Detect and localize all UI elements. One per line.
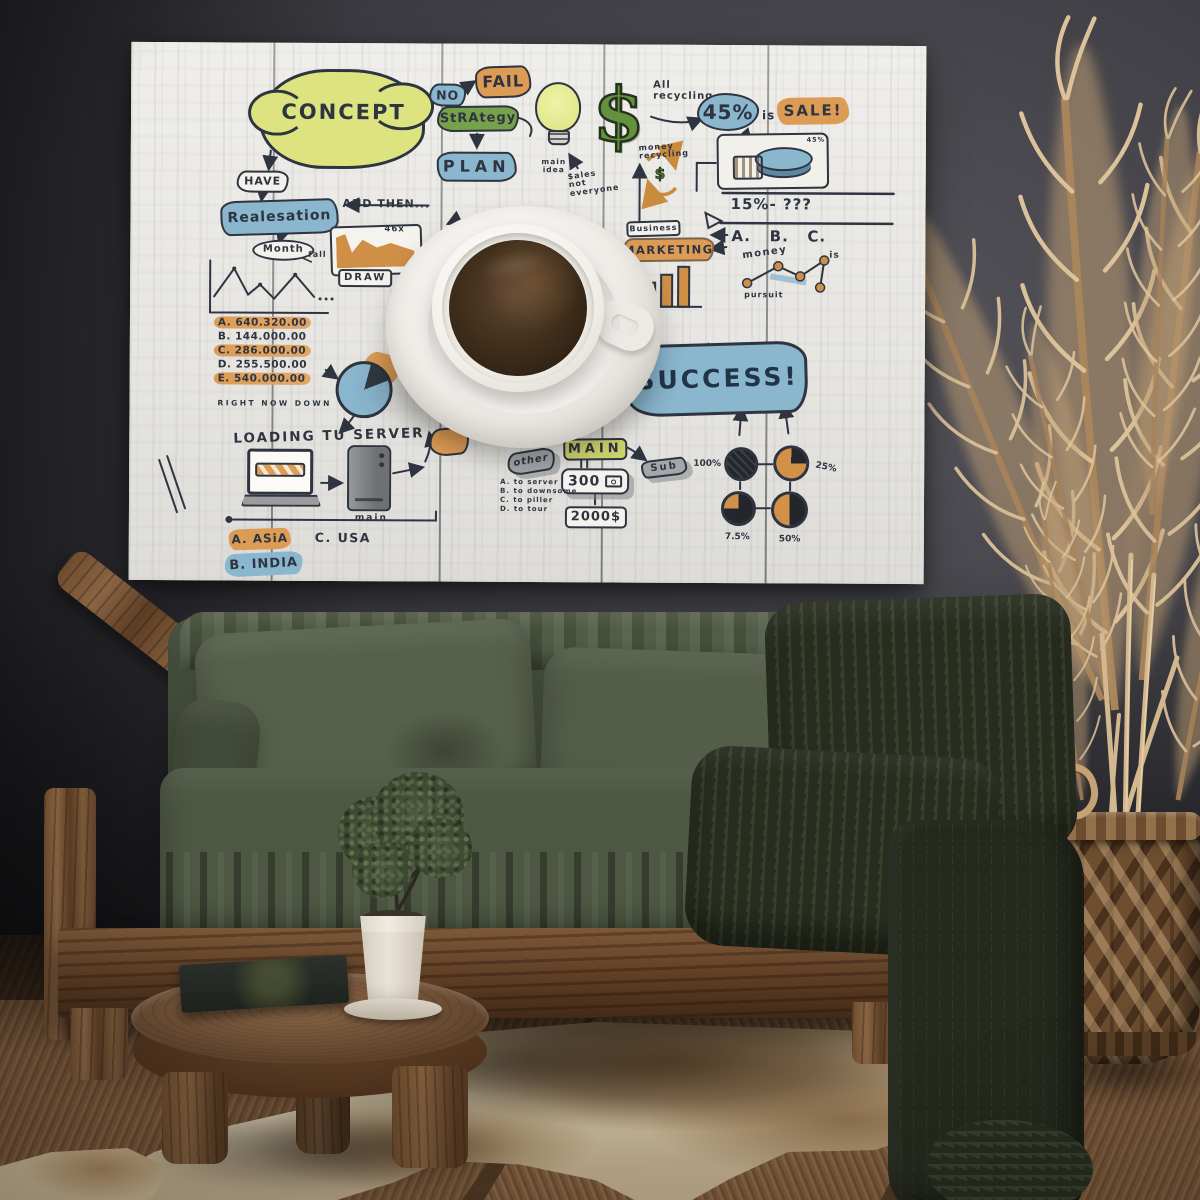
amount-row: B. 144.000.00 — [214, 330, 311, 343]
pie-3d-slice — [733, 155, 763, 179]
note-line: C. to piller — [500, 496, 577, 505]
amount-row: E. 540.000.00 — [214, 372, 311, 385]
amount-row: D. 255.500.00 — [214, 358, 311, 371]
notes-list: A. to server B. to downsome C. to piller… — [500, 478, 578, 515]
region-asia: A. ASiA — [229, 528, 292, 551]
lightbulb-icon — [535, 82, 581, 132]
server-caption: main — [355, 514, 388, 524]
table-leg-left — [162, 1072, 228, 1164]
no-box: NO — [429, 83, 466, 106]
book — [179, 955, 350, 1013]
server-led — [379, 453, 384, 458]
server-tower — [347, 445, 391, 511]
pie-3d-top — [755, 147, 813, 172]
is-label: is — [762, 109, 775, 122]
line-chart-sketch — [202, 254, 336, 319]
is-small-label: is — [829, 252, 840, 261]
draw-box: DRAW — [338, 269, 392, 287]
strategy-box: StRAtegy — [437, 105, 519, 132]
pie-50-label: 50% — [779, 534, 801, 544]
plan-box: PLAN — [437, 152, 517, 182]
laptop-loading-bar — [255, 463, 305, 477]
pie-50 — [771, 491, 808, 528]
pie-3d-callout: 45% — [807, 137, 826, 144]
area-chart-shape — [336, 232, 415, 268]
pie-25 — [773, 445, 809, 481]
region-india: B. INDIA — [224, 551, 303, 578]
camera-icon — [605, 475, 622, 487]
laptop-base — [241, 495, 321, 507]
have-box: HAVE — [237, 170, 289, 192]
laptop-sketch — [241, 449, 321, 511]
sofa-leg-back-left — [70, 1008, 128, 1080]
question-line: 15%- ??? — [731, 197, 813, 213]
plant-foliage — [352, 842, 412, 898]
lightbulb-base — [548, 130, 570, 145]
amount-row: A. 640.320.00 — [214, 316, 311, 329]
note-line: D. to tour — [500, 505, 577, 514]
region-usa: C. USA — [315, 531, 371, 544]
note-line: B. to downsome — [500, 487, 577, 496]
plant-pot-saucer — [344, 998, 442, 1020]
money-recycling-label: money recycling — [638, 141, 695, 161]
amount-row: C. 286.000.00 — [214, 344, 311, 357]
plant-pot-rim — [352, 916, 434, 932]
server-led — [379, 462, 384, 467]
amounts-list: A. 640.320.00 B. 144.000.00 C. 286.000.0… — [214, 316, 312, 387]
pie-100 — [724, 447, 758, 481]
pie-75-label: 7.5% — [725, 532, 750, 542]
pie-75 — [721, 491, 756, 526]
sale-box: SALE! — [777, 97, 849, 125]
concept-label: CONCEPT — [271, 101, 416, 124]
and-then-label: AND THEN... — [343, 198, 431, 210]
pie-100-label: 100% — [693, 459, 721, 469]
server-slot — [355, 498, 383, 501]
business-box: Business — [626, 220, 680, 238]
recycle-dollar: $ — [655, 165, 666, 183]
living-room-scene: CONCEPT HAVE Realesation Month fall A. 6… — [0, 0, 1200, 1200]
realisation-box: Realesation — [220, 198, 339, 236]
pursuit-label: pursuit — [744, 291, 783, 300]
chart-callout: 46x — [384, 225, 404, 234]
all-recycling-label: All recycling — [653, 81, 705, 102]
pie-3d-box: 45% — [716, 133, 829, 190]
fail-box: FAIL — [475, 65, 532, 99]
abc-line: A. B. C. — [731, 229, 826, 245]
note-line: A. to server — [500, 478, 577, 487]
right-now-down-label: RIGHT NOW DOWN — [218, 399, 332, 407]
dollar-sign: $ — [593, 72, 645, 158]
plant-foliage — [408, 818, 472, 878]
table-leg-right — [392, 1066, 468, 1168]
